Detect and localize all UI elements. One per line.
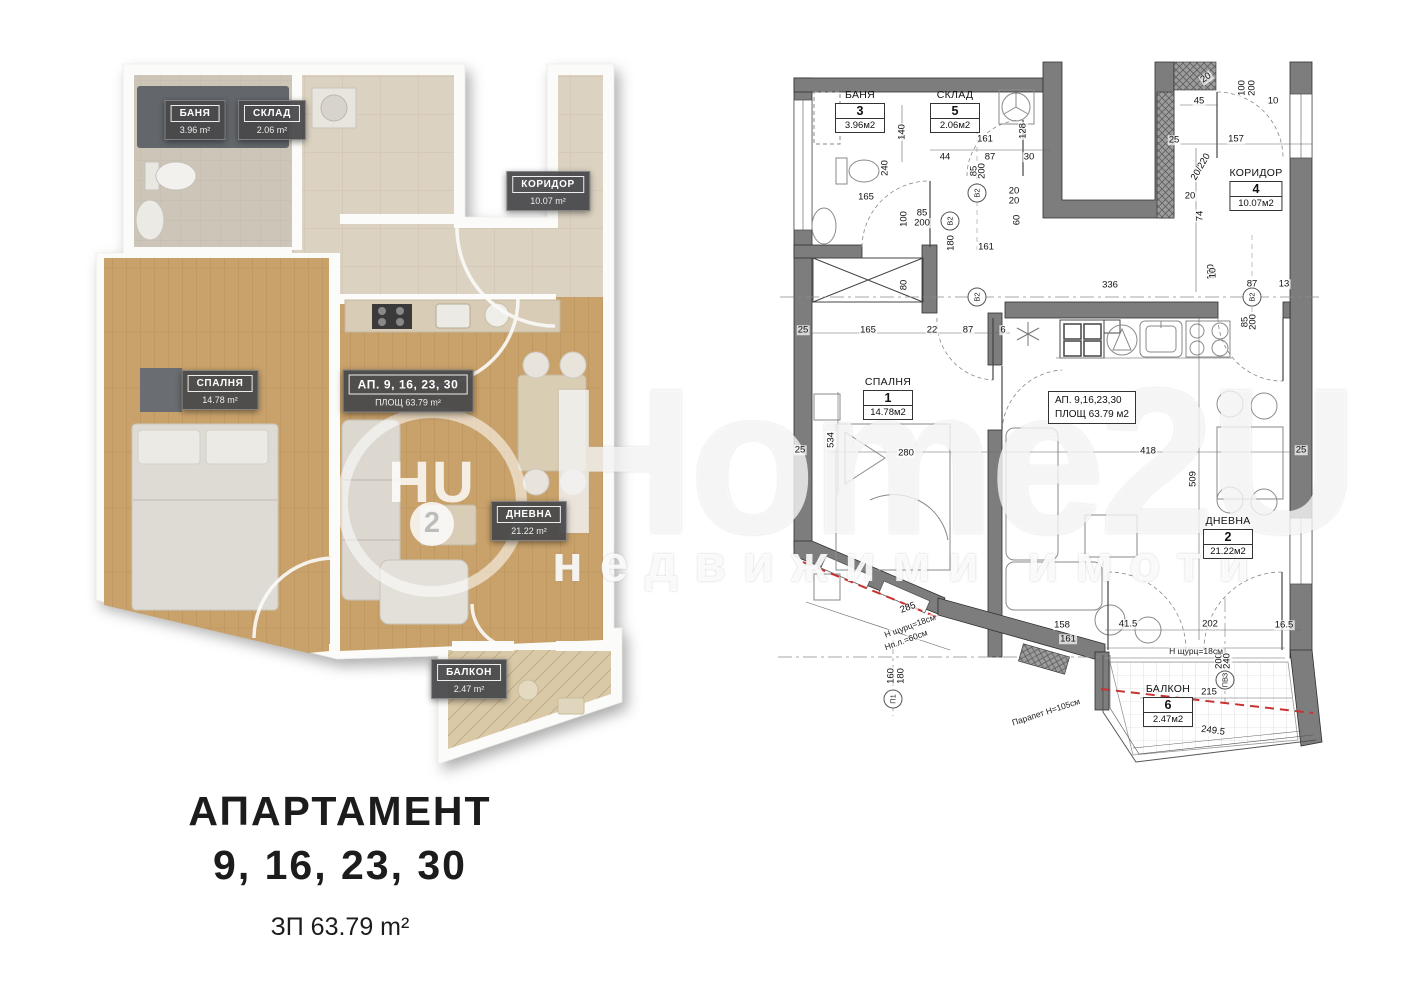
room-number: 5 <box>931 104 979 119</box>
room-area: 21.22 m² <box>497 526 561 536</box>
room-area: 2.47м2 <box>1144 713 1192 726</box>
apartment-number-line: АП. 9,16,23,30 <box>1055 394 1129 408</box>
room-box: 5 2.06м2 <box>930 103 980 133</box>
balcony-table <box>518 680 538 700</box>
room-number: 3 <box>836 104 884 119</box>
room-name: КОРИДОР <box>1229 167 1282 179</box>
tech-label-corridor: КОРИДОР 4 10.07м2 <box>1229 167 1282 211</box>
toilet <box>156 162 196 190</box>
room-badge-bedroom: СПАЛНЯ 14.78 m² <box>182 370 259 410</box>
floorplan-sheet: HU 2 Home2U недвижими имоти БАНЯ 3.96 m²… <box>0 0 1415 1000</box>
caption-apartment-numbers: 9, 16, 23, 30 <box>118 842 562 889</box>
room-box: 1 14.78м2 <box>863 390 913 420</box>
room-area: 21.22м2 <box>1204 545 1252 558</box>
render-floorplan <box>96 64 622 764</box>
burner <box>378 307 386 315</box>
room-name: СКЛАД <box>930 89 980 101</box>
room-area: 3.96 m² <box>171 125 220 135</box>
tech-label-bathroom: БАНЯ 3 3.96м2 <box>835 89 885 133</box>
tech-label-living: ДНЕВНА 2 21.22м2 <box>1203 515 1253 559</box>
coffee-table <box>420 505 476 545</box>
dining-table <box>518 375 586 471</box>
room-name: ДНЕВНА <box>1203 515 1253 527</box>
room-name: СКЛАД <box>244 105 300 122</box>
burner <box>396 307 404 315</box>
armchair <box>380 560 468 624</box>
apartment-area-line: ПЛОЩ 63.79 м2 <box>1055 408 1129 422</box>
apartment-number: АП. 9, 16, 23, 30 <box>349 375 468 395</box>
room-box: 4 10.07м2 <box>1229 181 1282 211</box>
room-area: 10.07м2 <box>1230 197 1281 210</box>
room-name: БАНЯ <box>835 89 885 101</box>
caption-title: АПАРТАМЕНТ <box>118 788 562 835</box>
chair <box>523 469 549 495</box>
burner <box>378 318 386 326</box>
tech-label-storage: СКЛАД 5 2.06м2 <box>930 89 980 133</box>
room-area: 14.78 m² <box>188 395 253 405</box>
room-badge-corridor: КОРИДОР 10.07 m² <box>506 171 590 211</box>
pillow <box>138 430 200 464</box>
room-badge-bathroom: БАНЯ 3.96 m² <box>165 100 226 140</box>
kitchen-sink <box>436 304 470 328</box>
room-number: 2 <box>1204 530 1252 545</box>
room-area: 2.06м2 <box>931 119 979 132</box>
room-box: 3 3.96м2 <box>835 103 885 133</box>
room-number: 6 <box>1144 698 1192 713</box>
room-area: 2.06 m² <box>244 125 300 135</box>
room-number: 1 <box>864 391 912 406</box>
room-name: БАЛКОН <box>437 664 501 681</box>
balcony-chair <box>558 698 584 714</box>
room-name: ДНЕВНА <box>497 506 561 523</box>
tech-label-bedroom: СПАЛНЯ 1 14.78м2 <box>863 376 913 420</box>
room-badge-balcony: БАЛКОН 2.47 m² <box>431 659 507 699</box>
room-area: 14.78м2 <box>864 406 912 419</box>
apartment-badge: АП. 9, 16, 23, 30 ПЛОЩ 63.79 m² <box>343 370 474 413</box>
room-name: СПАЛНЯ <box>863 376 913 388</box>
pillow <box>206 430 268 464</box>
apartment-area: ПЛОЩ 63.79 m² <box>349 398 468 408</box>
room-badge-living: ДНЕВНА 21.22 m² <box>491 501 567 541</box>
room-badge-storage: СКЛАД 2.06 m² <box>238 100 306 140</box>
tech-apartment-box: АП. 9,16,23,30 ПЛОЩ 63.79 м2 <box>1048 391 1136 424</box>
nightstand <box>814 574 840 600</box>
chair <box>523 352 549 378</box>
room-name: БАНЯ <box>171 105 220 122</box>
room-box: 6 2.47м2 <box>1143 697 1193 727</box>
sink <box>136 200 164 240</box>
stove <box>372 304 412 329</box>
caption-block: АПАРТАМЕНТ 9, 16, 23, 30 ЗП 63.79 m² <box>118 788 562 942</box>
room-area: 10.07 m² <box>512 196 584 206</box>
washer-door <box>321 95 347 121</box>
room-name: СПАЛНЯ <box>188 375 253 392</box>
wardrobe <box>140 368 182 412</box>
room-name: БАЛКОН <box>1143 683 1193 695</box>
burner <box>396 318 404 326</box>
room-area: 2.47 m² <box>437 684 501 694</box>
room-name: КОРИДОР <box>512 176 584 193</box>
room-box: 2 21.22м2 <box>1203 529 1253 559</box>
chair <box>560 469 586 495</box>
tech-label-balcony: БАЛКОН 6 2.47м2 <box>1143 683 1193 727</box>
chair <box>560 352 586 378</box>
caption-built-area: ЗП 63.79 m² <box>118 913 562 942</box>
room-area: 3.96м2 <box>836 119 884 132</box>
room-number: 4 <box>1230 182 1281 197</box>
